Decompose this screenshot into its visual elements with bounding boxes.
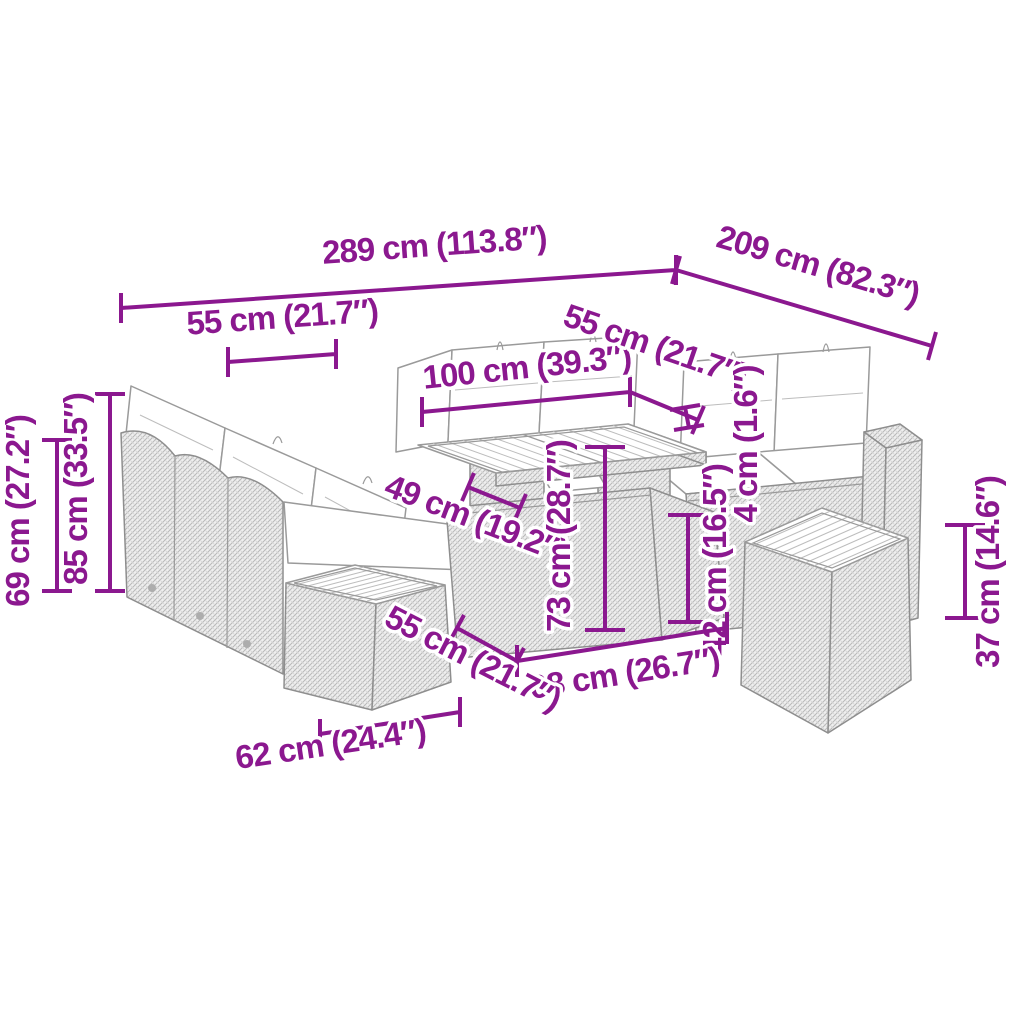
dim-stool-width: 62 cm (24.4″) bbox=[233, 697, 460, 776]
dim-total-height-label: 85 cm (33.5″) bbox=[57, 393, 94, 585]
dim-total-height: 85 cm (33.5″) bbox=[57, 393, 125, 591]
dim-stool-height-label: 37 cm (14.6″) bbox=[969, 476, 1006, 668]
furniture-dimension-diagram: 289 cm (113.8″) 209 cm (82.3″) 55 cm (21… bbox=[0, 0, 1024, 1024]
stool-front bbox=[284, 583, 376, 710]
back-cushion bbox=[774, 347, 870, 454]
dim-seat-width-back-label: 55 cm (21.7″) bbox=[185, 291, 379, 341]
dim-total-depth-label: 209 cm (82.3″) bbox=[713, 218, 924, 313]
dim-stool-height: 37 cm (14.6″) bbox=[945, 476, 1006, 668]
dim-stool-width-label: 62 cm (24.4″) bbox=[233, 711, 428, 776]
stool-front bbox=[741, 542, 832, 733]
dim-back-height-label: 69 cm (27.2″) bbox=[0, 415, 36, 607]
footstool-right bbox=[741, 508, 911, 733]
dim-total-depth: 209 cm (82.3″) bbox=[672, 218, 936, 360]
dim-seat-width-back: 55 cm (21.7″) bbox=[185, 291, 379, 377]
dim-total-width-label: 289 cm (113.8″) bbox=[321, 218, 548, 271]
dim-table-height-label: 73 cm (28.7″) bbox=[540, 440, 577, 632]
